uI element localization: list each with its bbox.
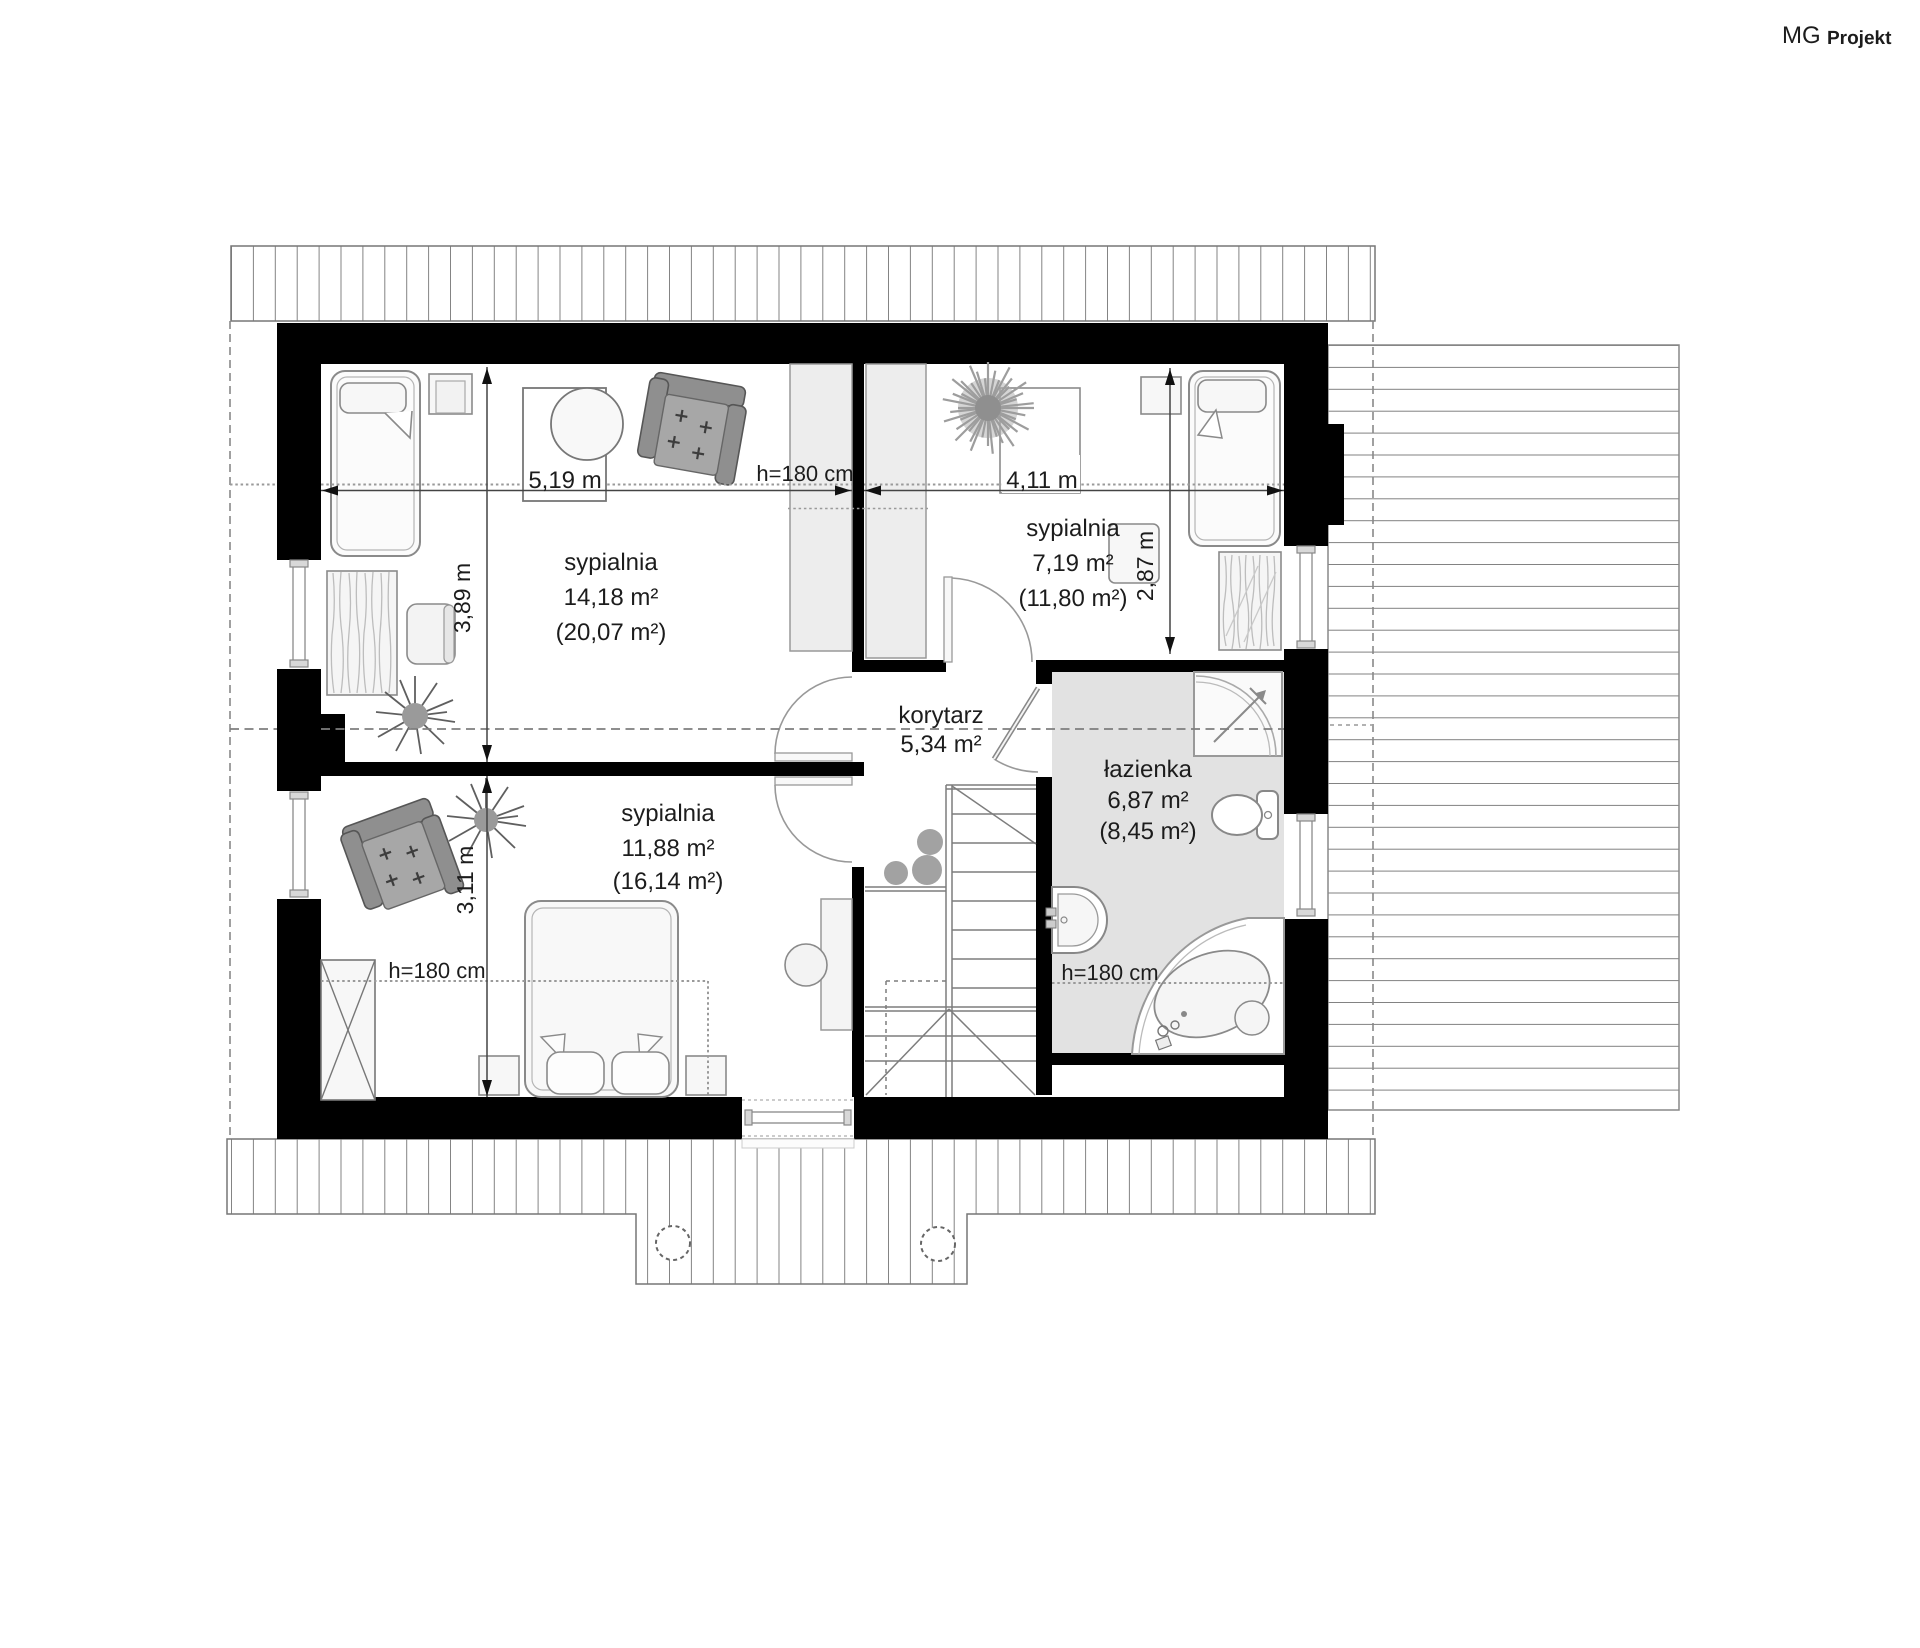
svg-text:3,11 m: 3,11 m xyxy=(452,846,478,915)
svg-text:łazienka: łazienka xyxy=(1104,756,1193,783)
svg-text:h=180 cm: h=180 cm xyxy=(756,461,853,486)
svg-text:h=180 cm: h=180 cm xyxy=(388,958,485,983)
svg-text:(11,80 m²): (11,80 m²) xyxy=(1019,585,1128,612)
svg-text:sypialnia: sypialnia xyxy=(564,549,658,576)
svg-text:(16,14 m²): (16,14 m²) xyxy=(613,868,724,895)
svg-text:11,88 m²: 11,88 m² xyxy=(622,835,715,862)
svg-text:14,18 m²: 14,18 m² xyxy=(564,584,659,611)
svg-text:5,34 m²: 5,34 m² xyxy=(900,731,981,758)
svg-text:7,19 m²: 7,19 m² xyxy=(1032,550,1113,577)
svg-text:6,87 m²: 6,87 m² xyxy=(1107,787,1188,814)
svg-text:MG: MG xyxy=(1782,22,1821,49)
svg-text:(8,45 m²): (8,45 m²) xyxy=(1099,818,1196,845)
svg-text:(20,07 m²): (20,07 m²) xyxy=(556,619,667,646)
svg-text:3,89 m: 3,89 m xyxy=(449,563,475,633)
svg-text:h=180 cm: h=180 cm xyxy=(1061,960,1158,985)
svg-text:5,19 m: 5,19 m xyxy=(528,467,601,494)
svg-text:sypialnia: sypialnia xyxy=(621,800,715,827)
svg-text:korytarz: korytarz xyxy=(898,702,983,729)
svg-text:4,11 m: 4,11 m xyxy=(1006,467,1078,494)
svg-text:sypialnia: sypialnia xyxy=(1026,515,1120,542)
svg-text:Projekt: Projekt xyxy=(1827,28,1892,49)
svg-text:2,87 m: 2,87 m xyxy=(1132,531,1158,601)
